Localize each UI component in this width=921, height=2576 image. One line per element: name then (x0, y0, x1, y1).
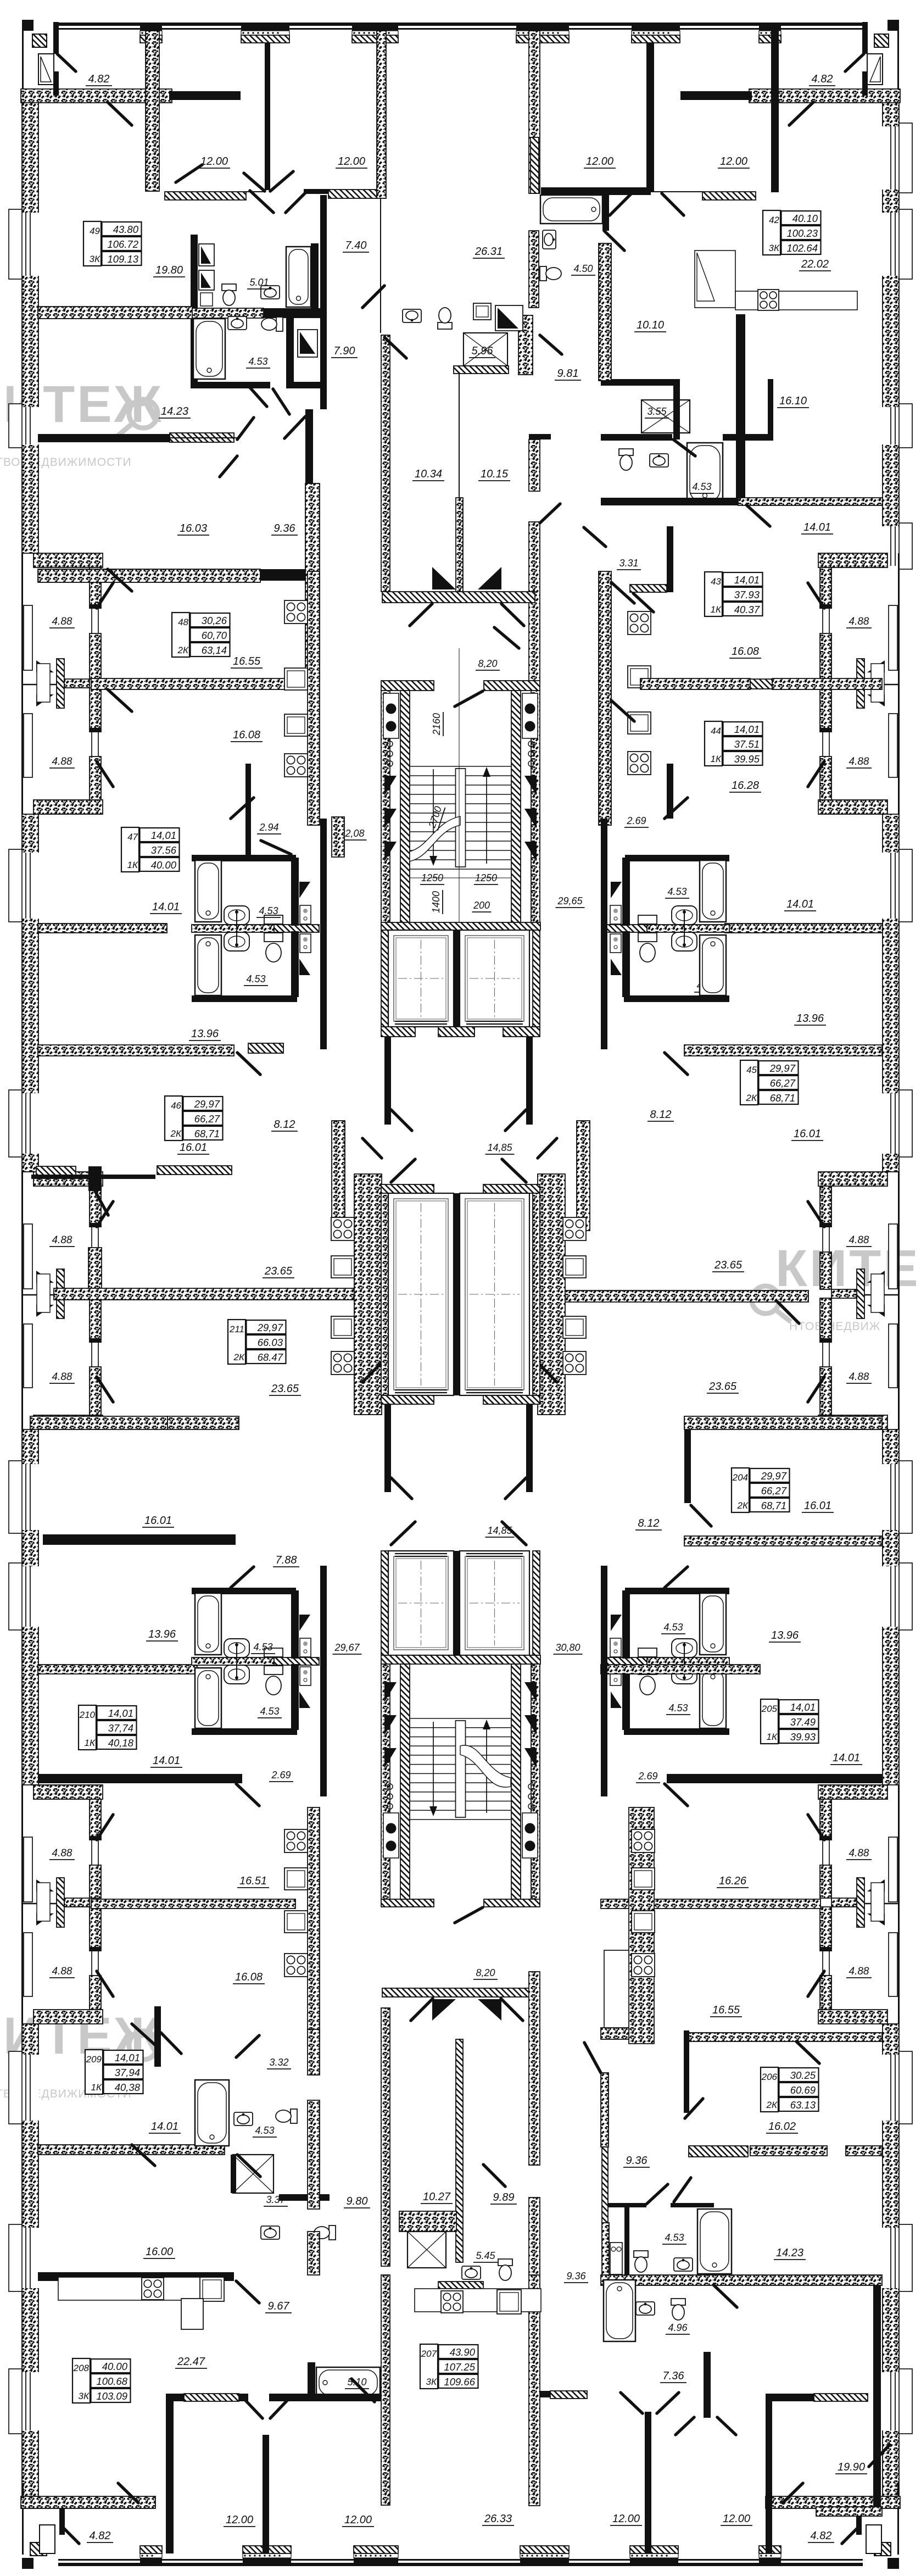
svg-text:40.37: 40.37 (734, 604, 760, 615)
svg-text:12.00: 12.00 (226, 2514, 253, 2526)
svg-text:14.01: 14.01 (153, 1755, 180, 1767)
svg-text:14,85: 14,85 (487, 1142, 512, 1153)
svg-text:1400: 1400 (431, 891, 442, 913)
svg-text:5.45: 5.45 (476, 2250, 495, 2261)
svg-text:16.08: 16.08 (233, 729, 260, 741)
svg-text:4.88: 4.88 (849, 1234, 869, 1246)
svg-text:2К: 2К (737, 1500, 749, 1511)
svg-text:23.65: 23.65 (264, 1265, 293, 1277)
svg-text:19.90: 19.90 (838, 2461, 865, 2473)
svg-text:8.12: 8.12 (638, 1517, 660, 1529)
svg-text:14,01: 14,01 (151, 830, 176, 841)
svg-text:4.88: 4.88 (52, 1966, 72, 1977)
svg-text:3К: 3К (426, 2377, 437, 2387)
svg-text:107.25: 107.25 (444, 2361, 475, 2373)
svg-text:29,67: 29,67 (334, 1642, 360, 1653)
svg-text:14,01: 14,01 (108, 1707, 133, 1719)
svg-text:30,26: 30,26 (202, 615, 227, 626)
svg-text:1К: 1К (767, 1732, 778, 1742)
svg-text:13.96: 13.96 (191, 1028, 219, 1040)
svg-text:37.51: 37.51 (734, 738, 760, 750)
svg-text:4.88: 4.88 (52, 1848, 72, 1859)
svg-text:9.67: 9.67 (268, 2300, 290, 2312)
svg-text:4.53: 4.53 (259, 905, 278, 916)
svg-text:16.01: 16.01 (144, 1515, 172, 1527)
svg-text:37.93: 37.93 (734, 589, 760, 600)
svg-text:14.01: 14.01 (786, 898, 814, 910)
svg-text:60,70: 60,70 (202, 630, 227, 641)
svg-text:102.64: 102.64 (786, 242, 818, 254)
svg-text:2160: 2160 (431, 713, 442, 736)
svg-text:209: 209 (86, 2054, 102, 2065)
svg-text:2К: 2К (170, 1128, 182, 1139)
svg-text:16.51: 16.51 (239, 1875, 267, 1887)
svg-text:4.53: 4.53 (667, 886, 686, 897)
svg-text:16.28: 16.28 (732, 780, 759, 792)
svg-text:68,71: 68,71 (770, 1092, 795, 1104)
svg-text:63.13: 63.13 (790, 2099, 816, 2111)
svg-text:16.03: 16.03 (180, 522, 207, 535)
svg-text:4.53: 4.53 (253, 1642, 272, 1653)
svg-text:4.82: 4.82 (812, 73, 833, 85)
svg-text:30.25: 30.25 (790, 2069, 816, 2081)
svg-text:2.69: 2.69 (638, 1771, 657, 1782)
svg-text:ТВО НЕДВИЖИМОСТИ: ТВО НЕДВИЖИМОСТИ (0, 456, 132, 469)
svg-text:14.01: 14.01 (803, 521, 831, 533)
svg-text:7.90: 7.90 (334, 345, 355, 357)
svg-text:43.90: 43.90 (450, 2346, 476, 2358)
svg-text:66,27: 66,27 (761, 1485, 787, 1496)
svg-text:4.88: 4.88 (849, 616, 869, 627)
svg-text:66.03: 66.03 (258, 1337, 283, 1348)
svg-text:9.81: 9.81 (557, 368, 579, 380)
svg-text:16.55: 16.55 (233, 655, 261, 667)
svg-text:37,74: 37,74 (108, 1722, 133, 1734)
svg-text:12.00: 12.00 (723, 2513, 750, 2525)
svg-text:40.10: 40.10 (792, 213, 818, 224)
svg-text:40,18: 40,18 (108, 1737, 134, 1749)
svg-text:9.36: 9.36 (626, 2155, 648, 2167)
svg-text:9.36: 9.36 (566, 2271, 586, 2282)
svg-text:13.96: 13.96 (148, 1628, 176, 1640)
svg-text:39.95: 39.95 (734, 753, 760, 765)
svg-text:12.00: 12.00 (338, 155, 365, 168)
svg-text:13.96: 13.96 (771, 1629, 799, 1642)
svg-text:37.56: 37.56 (151, 844, 177, 856)
svg-text:43: 43 (711, 576, 721, 587)
svg-text:16.00: 16.00 (146, 2246, 173, 2258)
svg-text:14,01: 14,01 (115, 2052, 140, 2063)
svg-text:19.80: 19.80 (155, 264, 183, 276)
svg-text:100.23: 100.23 (786, 227, 818, 239)
svg-text:42: 42 (769, 215, 779, 225)
svg-text:39.93: 39.93 (790, 1731, 816, 1743)
svg-text:14.01: 14.01 (152, 901, 180, 913)
svg-text:8,20: 8,20 (478, 658, 497, 669)
svg-text:10.10: 10.10 (637, 319, 664, 331)
svg-text:7.88: 7.88 (276, 1554, 297, 1566)
svg-text:37.49: 37.49 (790, 1716, 816, 1728)
svg-text:40.00: 40.00 (102, 2361, 128, 2372)
svg-text:68.47: 68.47 (258, 1351, 283, 1363)
svg-text:10.27: 10.27 (423, 2191, 451, 2203)
svg-text:4.88: 4.88 (52, 756, 72, 767)
svg-text:14.01: 14.01 (833, 1752, 860, 1764)
svg-text:1К: 1К (85, 1738, 96, 1748)
svg-text:23.65: 23.65 (708, 1381, 737, 1393)
svg-text:22.02: 22.02 (801, 258, 829, 270)
svg-text:16.10: 16.10 (779, 395, 807, 407)
svg-text:40,38: 40,38 (115, 2082, 141, 2093)
svg-text:48: 48 (178, 617, 188, 627)
svg-text:16.26: 16.26 (719, 1875, 747, 1887)
svg-text:14.23: 14.23 (776, 2247, 803, 2259)
svg-text:НТОВ НЕДВИЖ: НТОВ НЕДВИЖ (789, 1320, 880, 1333)
svg-text:4.88: 4.88 (849, 1371, 869, 1383)
svg-text:100.68: 100.68 (96, 2375, 127, 2387)
svg-text:210: 210 (79, 1710, 96, 1720)
svg-text:4.88: 4.88 (849, 1966, 869, 1977)
svg-text:3К: 3К (79, 2391, 90, 2401)
svg-text:4.53: 4.53 (668, 1703, 688, 1713)
svg-text:63,14: 63,14 (202, 644, 227, 656)
svg-text:4.53: 4.53 (246, 973, 265, 984)
svg-text:68,71: 68,71 (761, 1500, 786, 1511)
svg-text:29,97: 29,97 (769, 1062, 796, 1074)
svg-text:4.53: 4.53 (255, 2125, 274, 2136)
svg-text:66,27: 66,27 (194, 1113, 220, 1125)
svg-text:30,80: 30,80 (555, 1642, 580, 1653)
svg-text:10.34: 10.34 (415, 468, 442, 480)
svg-text:16.08: 16.08 (732, 646, 759, 658)
svg-text:16.08: 16.08 (235, 1971, 263, 1983)
svg-text:2К: 2К (177, 645, 189, 655)
svg-text:16.02: 16.02 (768, 2121, 796, 2133)
svg-text:208: 208 (73, 2363, 90, 2373)
svg-text:109.13: 109.13 (107, 253, 138, 265)
svg-text:3К: 3К (769, 243, 780, 253)
svg-text:3К: 3К (90, 254, 101, 264)
svg-text:4.88: 4.88 (52, 1234, 72, 1246)
svg-text:4.88: 4.88 (52, 616, 72, 627)
svg-text:13.96: 13.96 (796, 1012, 824, 1025)
svg-text:29,97: 29,97 (194, 1098, 220, 1110)
svg-text:37,94: 37,94 (115, 2067, 140, 2078)
svg-text:4.88: 4.88 (849, 756, 869, 767)
svg-text:5.01: 5.01 (249, 277, 269, 288)
svg-text:14,01: 14,01 (734, 574, 760, 586)
svg-text:8,20: 8,20 (476, 1967, 495, 1978)
svg-text:12.00: 12.00 (612, 2513, 640, 2525)
svg-text:43.80: 43.80 (113, 224, 139, 235)
svg-text:16.01: 16.01 (794, 1128, 821, 1140)
svg-text:2.69: 2.69 (271, 1770, 291, 1781)
svg-text:22.47: 22.47 (177, 2356, 205, 2368)
svg-text:2К: 2К (766, 2100, 778, 2110)
svg-text:23.65: 23.65 (271, 1383, 299, 1395)
svg-text:2К: 2К (746, 1093, 757, 1103)
svg-text:200: 200 (473, 900, 490, 911)
svg-text:5.96: 5.96 (472, 345, 494, 357)
svg-text:8.12: 8.12 (650, 1109, 672, 1121)
svg-text:14,01: 14,01 (734, 724, 760, 735)
svg-text:4.82: 4.82 (90, 2530, 111, 2542)
svg-text:16.55: 16.55 (712, 2004, 740, 2016)
svg-text:4.53: 4.53 (663, 1622, 683, 1633)
svg-text:60.69: 60.69 (790, 2084, 816, 2096)
svg-text:26.31: 26.31 (475, 246, 503, 258)
svg-text:16.01: 16.01 (804, 1500, 831, 1512)
svg-text:4.53: 4.53 (665, 2232, 684, 2243)
svg-text:2.94: 2.94 (259, 822, 278, 833)
svg-text:23.65: 23.65 (714, 1259, 743, 1271)
svg-text:4.96: 4.96 (668, 2322, 688, 2333)
svg-text:4.53: 4.53 (692, 481, 711, 492)
svg-text:205: 205 (761, 1704, 778, 1714)
svg-text:29,65: 29,65 (557, 895, 583, 906)
svg-text:106.72: 106.72 (107, 238, 138, 250)
svg-text:4.82: 4.82 (88, 73, 110, 85)
svg-text:4.82: 4.82 (811, 2530, 832, 2542)
svg-text:7.36: 7.36 (663, 2370, 685, 2382)
svg-text:1К: 1К (711, 754, 722, 764)
svg-text:49: 49 (90, 226, 100, 236)
svg-text:9.80: 9.80 (347, 2195, 368, 2207)
svg-text:26.33: 26.33 (484, 2513, 512, 2525)
svg-text:12.00: 12.00 (344, 2514, 372, 2526)
svg-text:40.00: 40.00 (151, 859, 177, 871)
svg-text:9.36: 9.36 (274, 522, 296, 535)
svg-text:7.40: 7.40 (345, 240, 367, 252)
svg-text:9.89: 9.89 (493, 2191, 515, 2204)
svg-text:207: 207 (421, 2349, 437, 2359)
svg-text:1К: 1К (711, 604, 722, 615)
svg-text:3.32: 3.32 (269, 2057, 288, 2068)
svg-text:14.01: 14.01 (151, 2121, 178, 2133)
svg-text:1К: 1К (91, 2082, 102, 2093)
svg-text:1К: 1К (127, 860, 138, 870)
svg-text:12.00: 12.00 (200, 155, 228, 168)
svg-text:29,97: 29,97 (257, 1322, 283, 1333)
svg-text:4.88: 4.88 (52, 1371, 72, 1383)
svg-text:4.53: 4.53 (248, 356, 267, 367)
svg-text:16.01: 16.01 (180, 1142, 207, 1154)
svg-text:211: 211 (229, 1324, 244, 1334)
svg-text:206: 206 (761, 2072, 778, 2082)
svg-text:3.31: 3.31 (619, 558, 638, 569)
svg-text:46: 46 (171, 1100, 181, 1111)
svg-text:103.09: 103.09 (96, 2390, 127, 2402)
svg-text:4.50: 4.50 (573, 263, 593, 274)
svg-text:109.66: 109.66 (444, 2376, 475, 2388)
svg-text:47: 47 (127, 832, 138, 842)
svg-text:2К: 2К (233, 1352, 245, 1362)
svg-text:45: 45 (746, 1065, 757, 1075)
svg-text:4.53: 4.53 (260, 1706, 279, 1717)
svg-text:3.55: 3.55 (647, 406, 667, 417)
svg-text:204: 204 (732, 1472, 748, 1483)
svg-text:44: 44 (711, 726, 721, 736)
svg-text:2.69: 2.69 (626, 815, 646, 826)
svg-text:8.12: 8.12 (274, 1119, 295, 1131)
svg-text:12.00: 12.00 (586, 155, 613, 168)
svg-text:14.23: 14.23 (161, 405, 188, 418)
svg-text:14,01: 14,01 (790, 1701, 816, 1713)
svg-text:4.88: 4.88 (849, 1848, 869, 1859)
svg-text:10.15: 10.15 (481, 468, 509, 480)
svg-text:29,97: 29,97 (761, 1470, 787, 1482)
svg-text:68,71: 68,71 (194, 1128, 220, 1139)
svg-text:12.00: 12.00 (720, 155, 747, 168)
svg-text:66,27: 66,27 (770, 1077, 796, 1089)
